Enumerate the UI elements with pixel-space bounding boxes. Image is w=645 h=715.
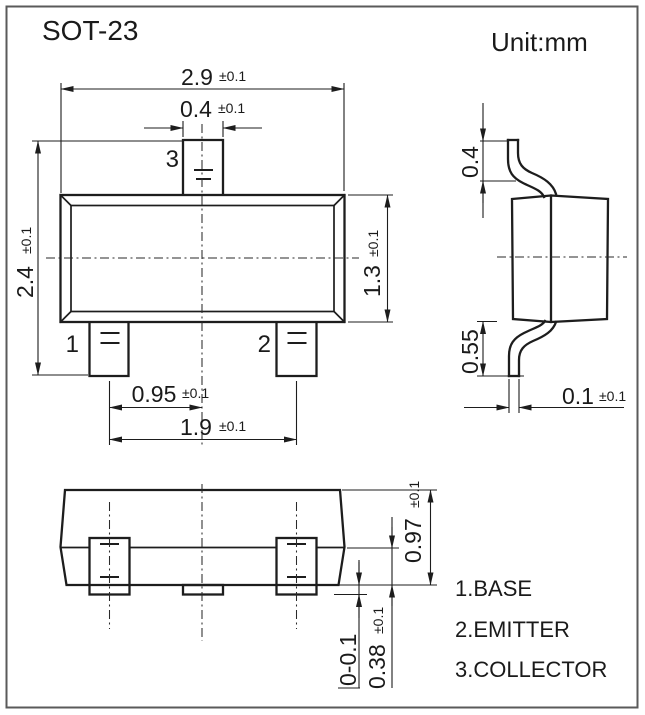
page-title: SOT-23 <box>42 15 138 46</box>
top-view: 3 1 2 2.9 ±0.1 0.4 ±0.1 2.4 ±0.1 <box>12 64 393 446</box>
dim-lead-thickness: 0.1 ±0.1 <box>464 379 626 413</box>
dim-pin-pitch-tolerance: ±0.1 <box>182 385 209 401</box>
side-view-bottom-lead <box>509 321 556 376</box>
front-view-centerlines <box>110 484 297 641</box>
dim-bottom-lead-height-value: 0.55 <box>457 329 483 374</box>
dim-pin-width-value: 0.4 <box>180 96 212 122</box>
dim-top-lead-height-value: 0.4 <box>457 146 483 178</box>
legend-item-collector: 3.COLLECTOR <box>455 657 607 682</box>
unit-label: Unit:mm <box>491 27 588 57</box>
dim-pin-span-tolerance: ±0.1 <box>219 418 246 434</box>
dim-overall-height-value: 2.4 <box>12 266 38 298</box>
dim-total-height: 0.97 ±0.1 <box>334 481 437 585</box>
datasheet-package-drawing: SOT-23 Unit:mm <box>0 0 645 715</box>
dim-pin-pitch-value: 0.95 <box>132 381 177 407</box>
dim-body-height-tolerance: ±0.1 <box>365 230 381 257</box>
header: SOT-23 Unit:mm <box>42 15 588 57</box>
side-view-body <box>512 196 608 323</box>
dim-body-width-tolerance: ±0.1 <box>219 68 246 84</box>
pin-legend: 1.BASE 2.EMITTER 3.COLLECTOR <box>455 576 607 682</box>
front-view-center-pad <box>183 585 223 595</box>
dim-body-height-value: 1.3 <box>359 265 385 297</box>
top-view-pin1 <box>90 323 129 376</box>
dim-total-height-value: 0.97 <box>400 518 426 563</box>
drawing-svg: SOT-23 Unit:mm <box>0 0 645 715</box>
pin1-label: 1 <box>66 331 79 358</box>
legend-item-base: 1.BASE <box>455 576 532 601</box>
dim-standoff-value: 0-0.1 <box>335 634 361 686</box>
top-view-pin3 <box>183 140 223 194</box>
side-view-top-lead <box>508 140 556 197</box>
dim-pin-width: 0.4 ±0.1 <box>144 96 262 137</box>
dim-total-height-tolerance: ±0.1 <box>406 481 422 508</box>
pin3-label: 3 <box>166 146 179 173</box>
legend-item-emitter: 2.EMITTER <box>455 617 570 642</box>
dim-lead-thickness-value: 0.1 <box>562 383 594 409</box>
dim-bottom-lead-height: 0.55 <box>457 322 524 377</box>
dim-overall-height-tolerance: ±0.1 <box>18 227 34 254</box>
dim-lead-thickness-tolerance: ±0.1 <box>599 388 626 404</box>
dim-pin-span: 1.9 ±0.1 <box>110 414 297 440</box>
dim-lower-body-height-tolerance: ±0.1 <box>370 607 386 634</box>
dim-body-width-value: 2.9 <box>181 64 213 90</box>
dim-pin-width-tolerance: ±0.1 <box>218 100 245 116</box>
front-view: 0.97 ±0.1 0.38 ±0.1 0-0.1 <box>61 481 438 689</box>
dim-lower-body-height-value: 0.38 <box>364 644 390 689</box>
dim-pin-span-value: 1.9 <box>180 414 212 440</box>
pin2-label: 2 <box>258 331 271 358</box>
side-view: 0.4 0.55 0.1 ±0.1 <box>457 103 627 413</box>
page-border <box>7 7 638 708</box>
front-view-lead-marks <box>100 544 306 577</box>
top-view-pin2 <box>277 323 317 376</box>
